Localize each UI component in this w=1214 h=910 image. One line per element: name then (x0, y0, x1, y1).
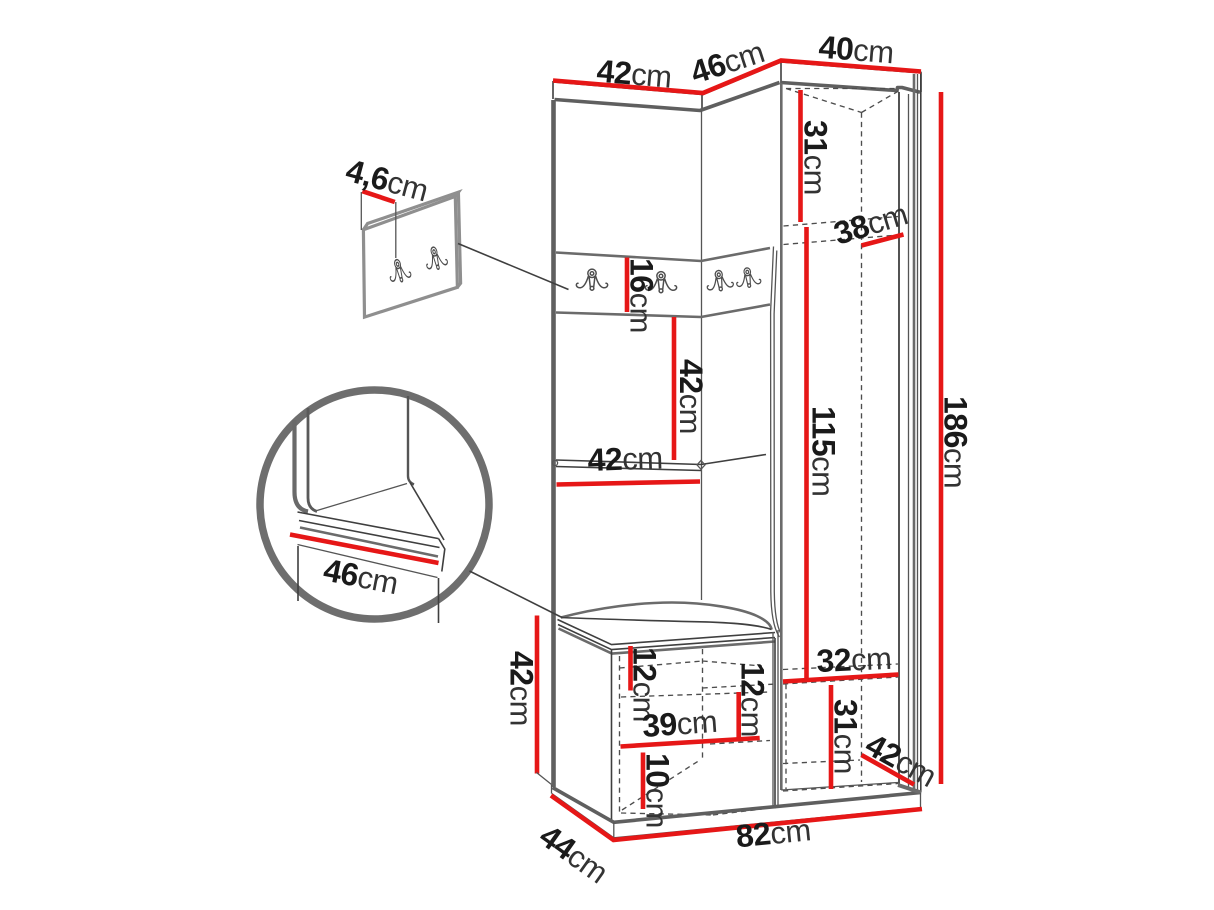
svg-text:186cm: 186cm (938, 396, 974, 488)
svg-text:12cm: 12cm (735, 662, 771, 737)
svg-text:10cm: 10cm (640, 753, 676, 828)
svg-text:32cm: 32cm (816, 640, 892, 679)
svg-text:115cm: 115cm (806, 406, 842, 496)
svg-text:42cm: 42cm (595, 53, 673, 95)
svg-text:39cm: 39cm (641, 703, 718, 744)
svg-text:31cm: 31cm (798, 120, 834, 195)
svg-text:42cm: 42cm (587, 439, 663, 478)
svg-text:31cm: 31cm (828, 699, 864, 774)
svg-text:40cm: 40cm (817, 29, 895, 71)
svg-text:16cm: 16cm (624, 258, 660, 333)
svg-text:42cm: 42cm (673, 359, 709, 434)
svg-text:82cm: 82cm (734, 811, 812, 854)
svg-text:42cm: 42cm (504, 651, 540, 726)
